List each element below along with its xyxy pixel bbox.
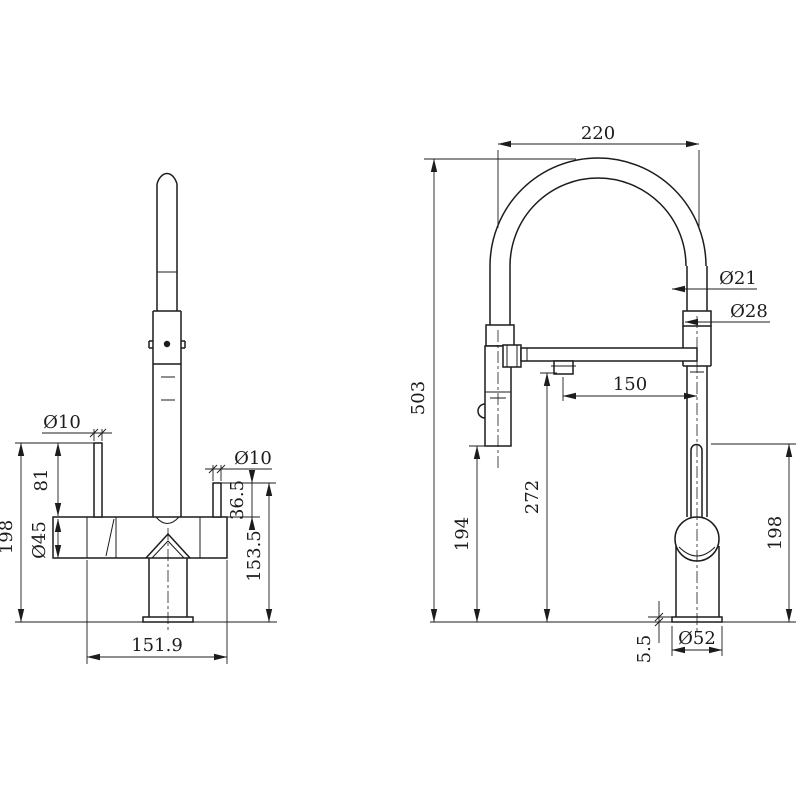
sprayer-assembly [478,325,521,446]
spout-bar [521,348,697,361]
sprayer-switch [478,404,485,418]
dim-filter-handle-dia: Ø10 [234,448,272,469]
front-handle-pin [691,445,702,518]
outlet-nub [554,361,573,374]
dim-outlet-height: 272 [522,480,543,514]
spray-handle-side [149,173,185,523]
dim-body-length: 151.9 [131,635,183,656]
side-view [15,173,277,632]
dim-base-plate: 5.5 [634,635,655,664]
drawing-canvas: Ø10 81 198 Ø45 Ø10 36.5 153.5 151.9 [0,0,800,800]
dim-front-overall-height: 503 [408,381,429,415]
dim-filter-handle-top: 153.5 [244,530,265,582]
front-view-dimensions: 220 Ø21 Ø28 150 503 194 272 198 5.5 Ø52 [408,123,796,663]
spring-spout-arc [490,158,707,325]
dim-handle-height: 81 [31,469,52,492]
side-view-dimensions: Ø10 81 198 Ø45 Ø10 36.5 153.5 151.9 [0,412,276,664]
dim-base-dia: Ø52 [678,628,716,649]
dim-spout-reach: 150 [613,374,647,395]
faucet-technical-drawing: Ø10 81 198 Ø45 Ø10 36.5 153.5 151.9 [0,0,800,800]
dim-spray-clearance: 194 [452,517,473,551]
dim-collar-dia: Ø28 [730,301,768,322]
filter-handle-pin [213,483,221,517]
dim-filter-handle-height: 36.5 [227,480,248,520]
mixer-handle-pin [94,443,102,517]
dim-side-overall-height: 198 [0,520,17,554]
dim-front-body-height: 198 [765,516,786,550]
mixer-body-side [53,517,227,558]
spray-button-dot [164,341,170,347]
spout-joint-nut [503,345,521,367]
sprayer-collar [486,325,514,346]
dim-hose-dia: Ø21 [719,268,757,289]
dim-body-dia: Ø45 [29,521,50,559]
dim-spout-width: 220 [581,123,615,144]
dim-handle-dia: Ø10 [43,412,81,433]
front-view [430,158,796,633]
